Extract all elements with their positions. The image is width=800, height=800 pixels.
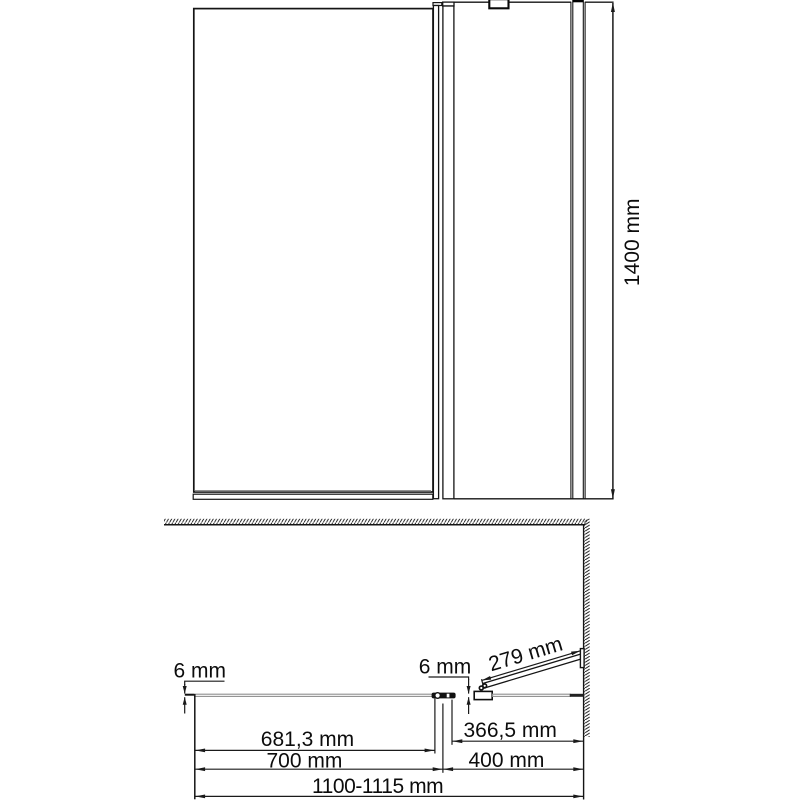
svg-text:1400 mm: 1400 mm: [621, 199, 644, 287]
svg-text:400 mm: 400 mm: [469, 749, 545, 772]
svg-text:700 mm: 700 mm: [267, 749, 343, 772]
svg-text:6 mm: 6 mm: [174, 660, 227, 683]
svg-text:366,5 mm: 366,5 mm: [464, 719, 557, 742]
svg-text:1100-1115 mm: 1100-1115 mm: [312, 775, 443, 798]
svg-text:681,3 mm: 681,3 mm: [261, 728, 354, 751]
svg-text:6 mm: 6 mm: [419, 655, 472, 678]
